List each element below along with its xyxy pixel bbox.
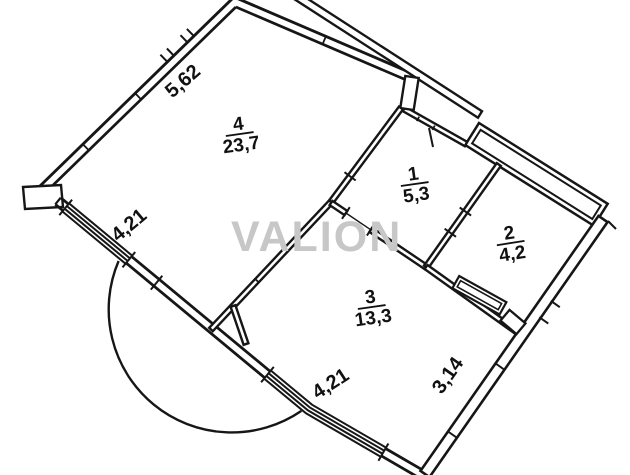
svg-text:13,3: 13,3 [354,305,394,331]
svg-text:3: 3 [364,286,377,308]
svg-text:2: 2 [502,222,516,244]
svg-text:3,14: 3,14 [428,353,469,398]
svg-text:4,21: 4,21 [308,364,353,404]
svg-text:1: 1 [407,163,421,185]
svg-text:5,3: 5,3 [402,183,431,207]
svg-text:4,2: 4,2 [498,242,527,267]
svg-text:5,62: 5,62 [161,60,205,102]
svg-text:23,7: 23,7 [222,132,262,158]
svg-text:VALION: VALION [231,213,402,261]
svg-text:4: 4 [232,113,246,135]
